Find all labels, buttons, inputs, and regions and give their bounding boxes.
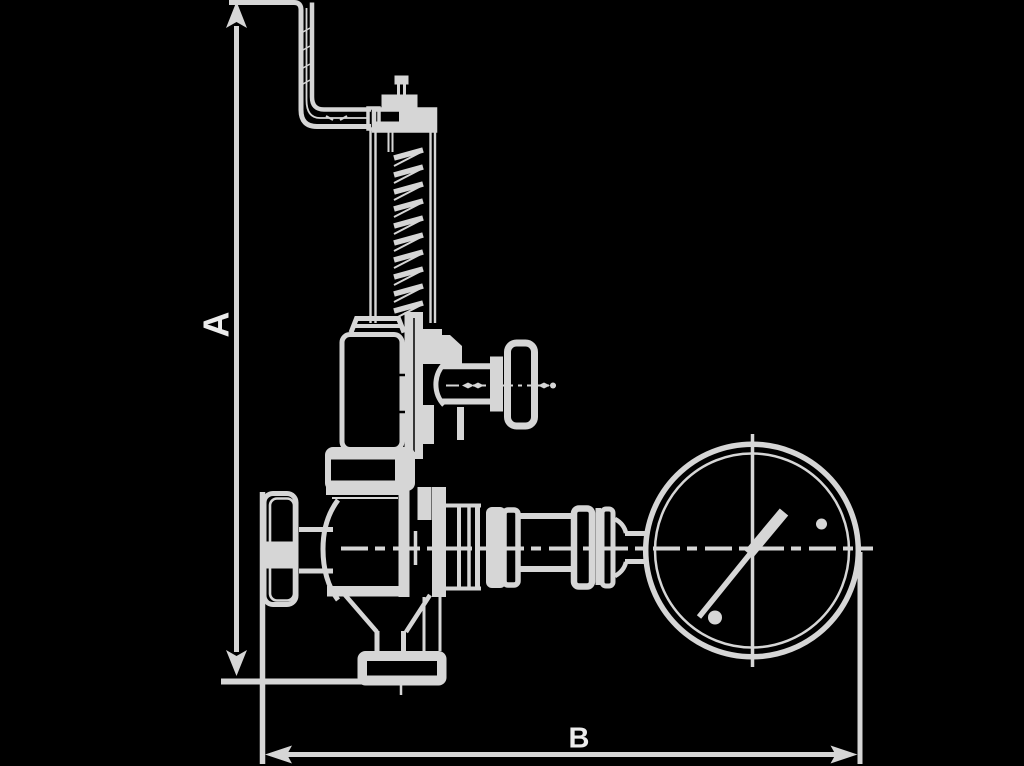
- svg-text:B: B: [569, 723, 590, 755]
- svg-text:A: A: [196, 312, 237, 338]
